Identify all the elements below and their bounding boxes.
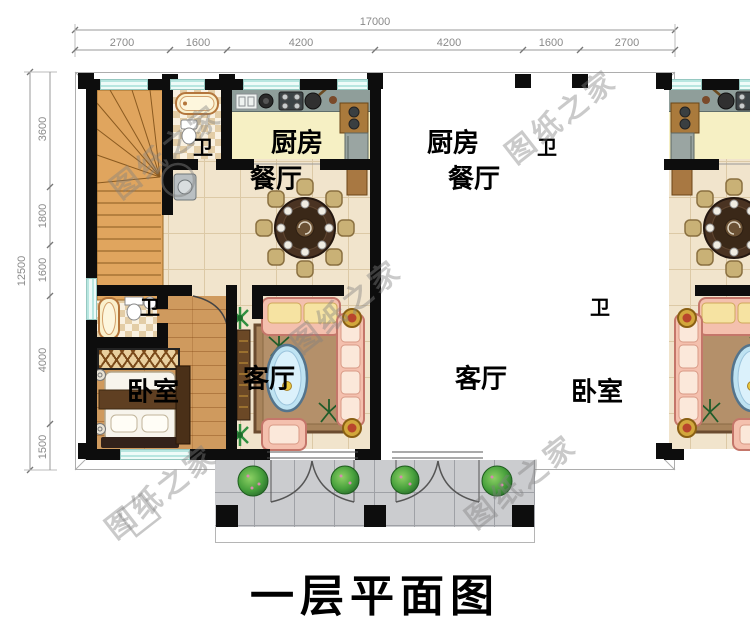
unit-furniture	[664, 79, 750, 460]
washing-machine	[174, 174, 196, 200]
kitchen-sink	[236, 94, 257, 109]
page-title: 一层平面图	[250, 560, 500, 624]
wall-corner-stub	[252, 296, 263, 319]
porch-column	[216, 505, 238, 527]
wall-midbath-bottom	[86, 337, 168, 348]
dim-top-seg-6: 2700	[615, 37, 639, 49]
window-center	[671, 79, 702, 90]
window-bath-top	[170, 79, 205, 90]
corner-post	[656, 73, 672, 89]
dim-top-seg-1: 2700	[110, 37, 134, 49]
corner-post	[78, 443, 94, 459]
wall-post	[219, 74, 235, 88]
dim-left-seg-1: 3600	[37, 117, 49, 141]
label-kitchen-left: 厨房	[271, 123, 323, 160]
wall-bath-bottom-b	[216, 159, 254, 170]
bathtub-mid	[99, 298, 119, 339]
window-kitchen	[243, 79, 300, 90]
dim-left-seg-5: 1500	[37, 435, 49, 459]
dim-top-total: 17000	[360, 16, 391, 28]
wall-exterior-side	[86, 79, 97, 460]
stove-top	[702, 89, 750, 110]
dim-top-seg-2: 1600	[186, 37, 210, 49]
porch-column	[364, 505, 386, 527]
label-living-right: 客厅	[455, 359, 507, 396]
dim-top-seg-4: 4200	[437, 37, 461, 49]
dim-left-seg-2: 1800	[37, 204, 49, 228]
unit-right	[664, 79, 750, 460]
label-kitchen-right: 厨房	[427, 123, 479, 160]
window-midbath	[86, 278, 97, 320]
floor-plan-canvas: 厨房 厨房 餐厅 餐厅 卫 卫 卫 卫 客厅 客厅 卧室 卧室 17000 27…	[0, 0, 750, 633]
label-dining-right: 餐厅	[448, 159, 500, 196]
wall-living-top	[695, 285, 750, 296]
window-kitchen	[739, 79, 750, 90]
wall-hall-stub	[168, 285, 192, 296]
dimension-lines-top	[72, 24, 678, 57]
dim-left-seg-3: 1600	[37, 258, 49, 282]
dim-top-seg-5: 1600	[539, 37, 563, 49]
wall-kitchen-bottom	[664, 159, 719, 170]
dim-top-seg-3: 4200	[289, 37, 313, 49]
dim-left-total: 12500	[16, 256, 28, 287]
corner-post	[656, 443, 672, 459]
corner-post	[78, 73, 94, 89]
wall-post	[515, 74, 531, 88]
label-bath-mid-left: 卫	[140, 292, 160, 321]
label-bedroom-left: 卧室	[127, 372, 179, 409]
label-bedroom-right: 卧室	[571, 372, 623, 409]
dining-table-set	[685, 179, 750, 277]
wall-kitchen-bottom	[320, 159, 375, 170]
window-center	[337, 79, 368, 90]
wall-post	[367, 73, 383, 89]
stove-top	[259, 89, 337, 110]
dim-left-seg-4: 4000	[37, 348, 49, 372]
wall-bedroom-living	[226, 285, 237, 460]
label-dining-left: 餐厅	[250, 159, 302, 196]
bedroom-door-arc	[193, 296, 228, 331]
label-living-left: 客厅	[243, 359, 295, 396]
window-stair	[100, 79, 148, 90]
label-bath-mid-right: 卫	[590, 292, 610, 321]
